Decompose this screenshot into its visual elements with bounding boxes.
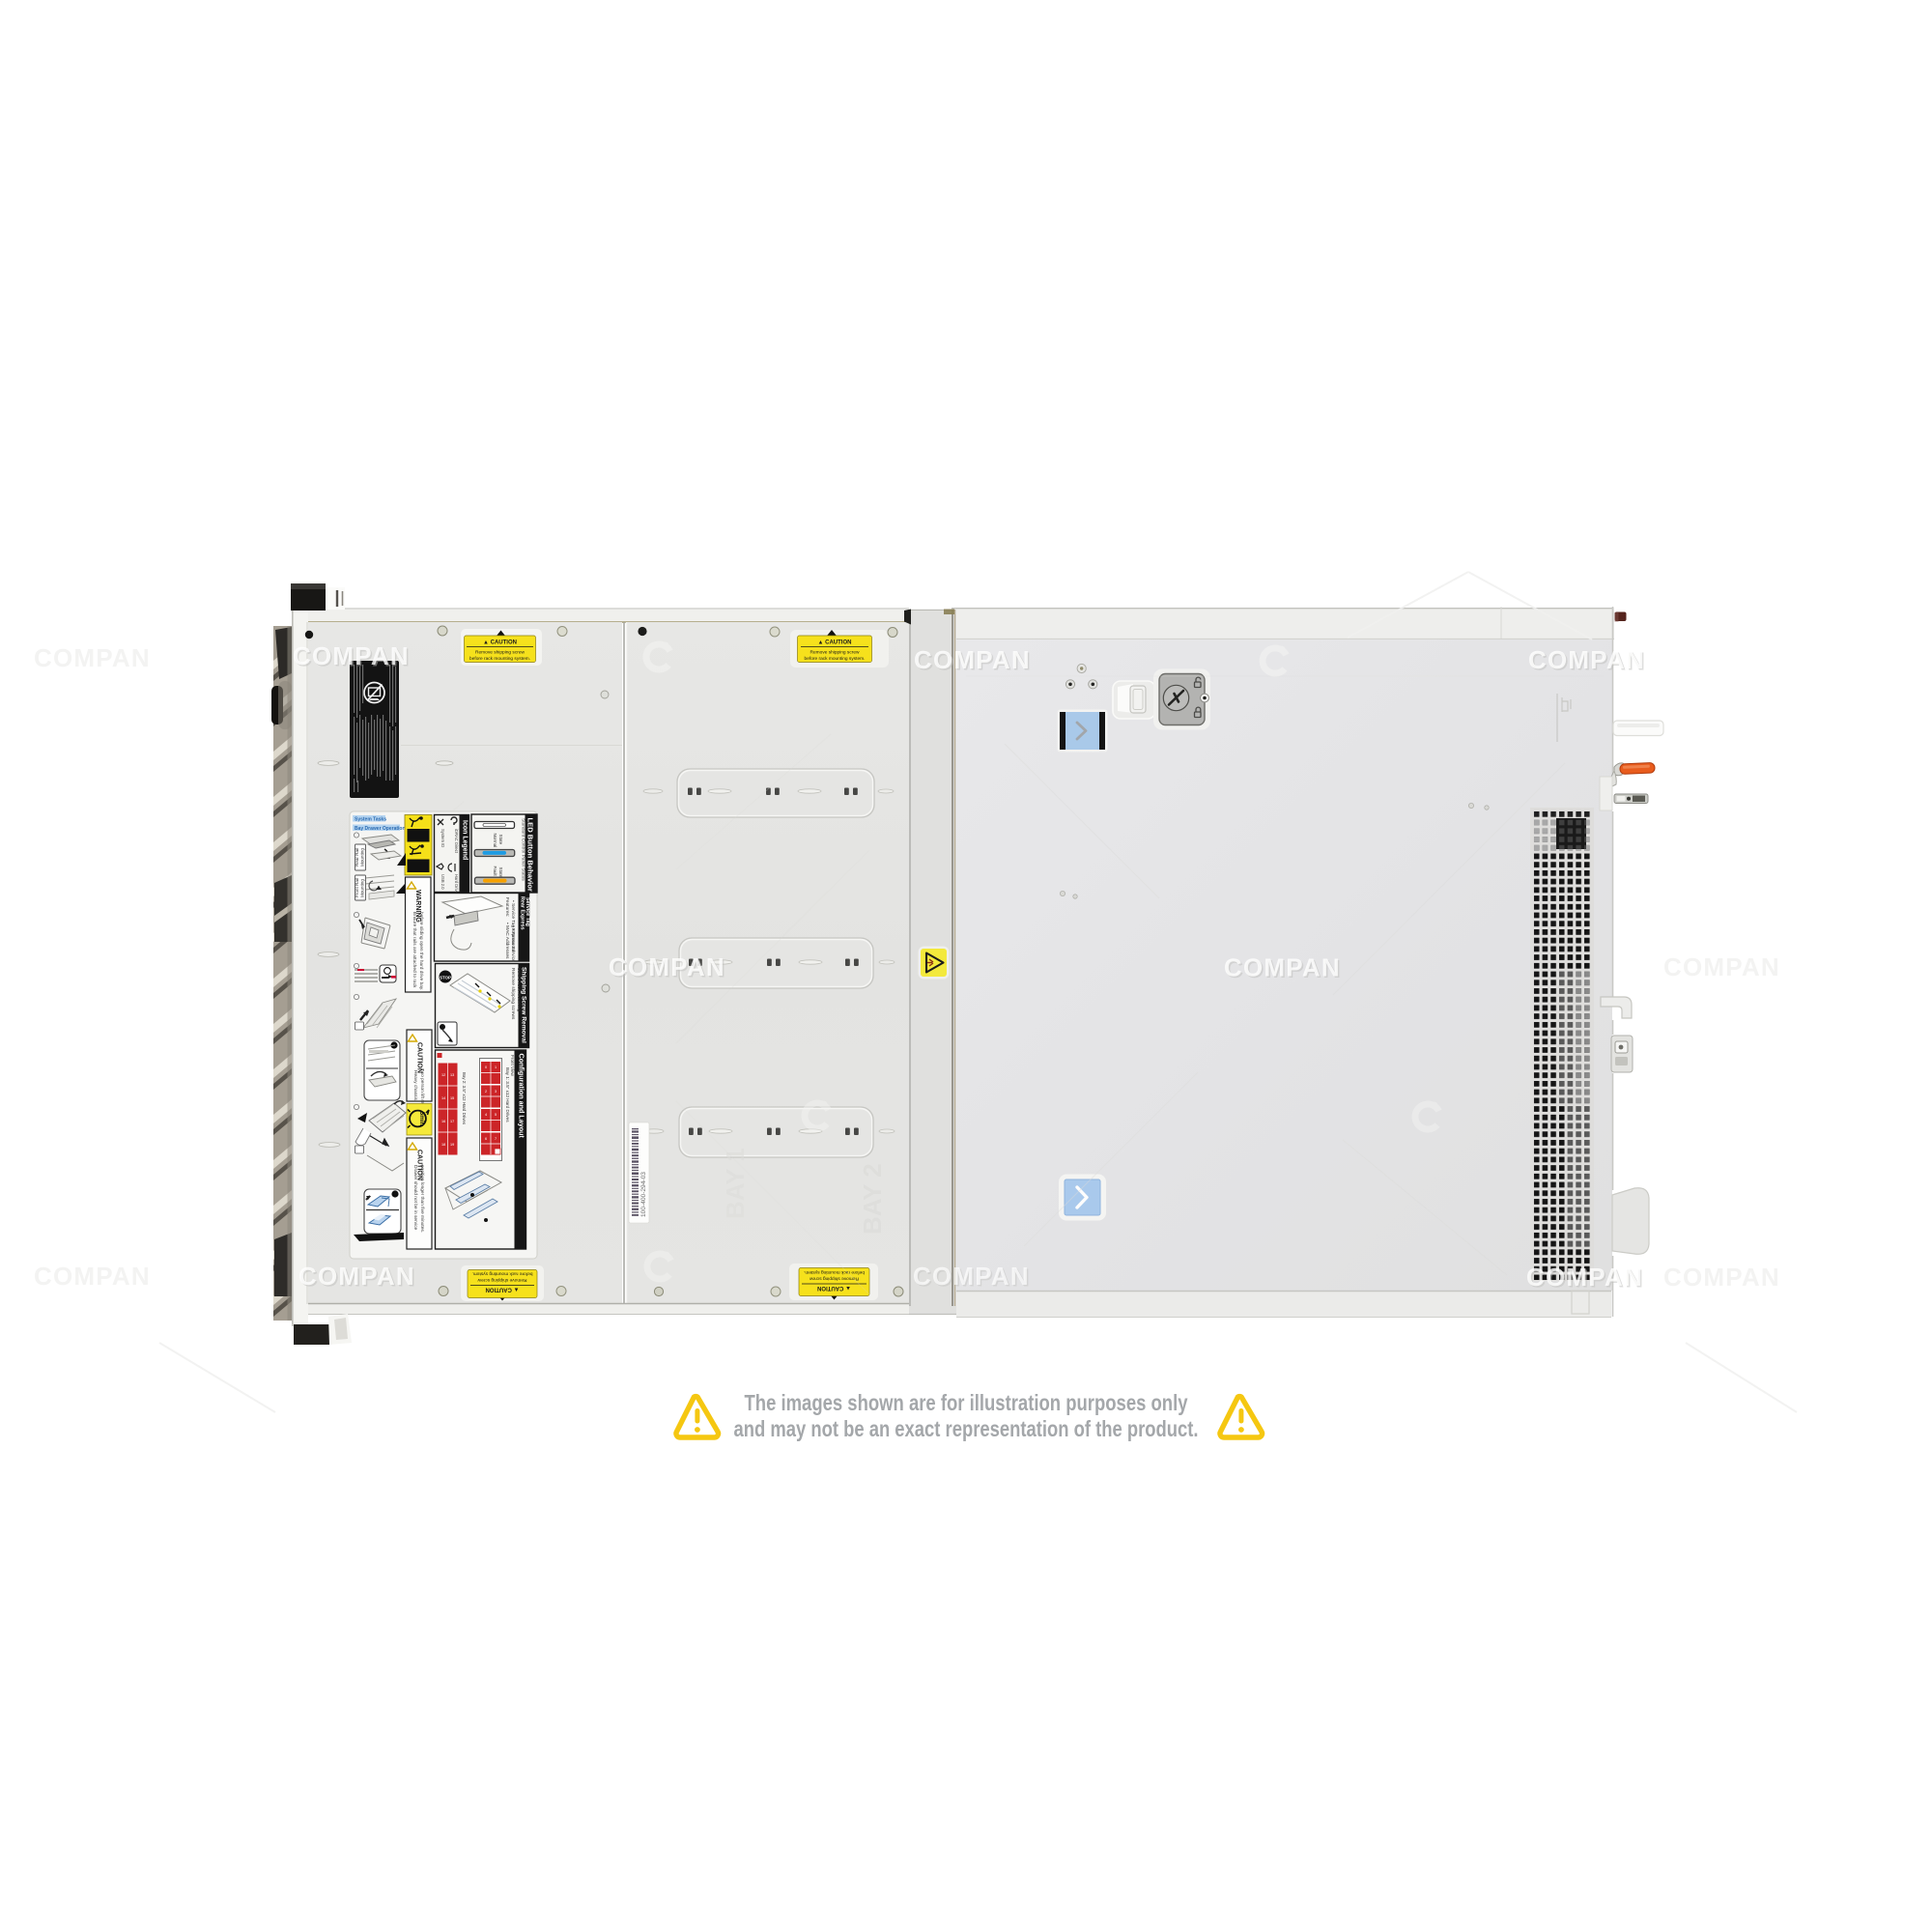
svg-text:COMPAN: COMPAN <box>293 641 410 670</box>
svg-text:before rack mounting system.: before rack mounting system. <box>804 1269 865 1275</box>
svg-text:Remove shipping screw: Remove shipping screw <box>475 650 525 656</box>
svg-text:before sliding open the hard d: before sliding open the hard drive bay. <box>418 912 424 990</box>
svg-text:2: 2 <box>485 1090 487 1094</box>
svg-text:COMPAN: COMPAN <box>298 1262 415 1291</box>
svg-text:COMPAN: COMPAN <box>1663 952 1780 981</box>
svg-text:and may not be an exact repres: and may not be an exact representation o… <box>734 1416 1199 1441</box>
svg-text:▲ CAUTION: ▲ CAUTION <box>483 640 517 646</box>
svg-text:COMPAN: COMPAN <box>609 952 725 981</box>
svg-text:7: 7 <box>495 1137 497 1141</box>
svg-text:Configuration and Layout: Configuration and Layout <box>518 1054 526 1139</box>
svg-text:12: 12 <box>441 1073 445 1077</box>
svg-text:Fault: Fault <box>493 867 497 877</box>
svg-text:16: 16 <box>441 1120 445 1123</box>
svg-text:COMPAN: COMPAN <box>34 643 151 672</box>
svg-text:Two person lift req.: Two person lift req. <box>419 1068 425 1108</box>
svg-text:COMPAN: COMPAN <box>1526 1263 1643 1292</box>
svg-text:17: 17 <box>450 1120 454 1123</box>
svg-text:Features:: Features: <box>504 897 510 917</box>
svg-text:before rack mounting system.: before rack mounting system. <box>805 656 866 662</box>
svg-text:State: State <box>498 867 503 878</box>
svg-text:COMPAN: COMPAN <box>1663 1263 1780 1292</box>
svg-text:Standard Control Panel Status: Standard Control Panel Status <box>521 818 526 881</box>
svg-text:before rack mounting system.: before rack mounting system. <box>469 656 530 662</box>
svg-text:COMPAN: COMPAN <box>1224 953 1341 982</box>
svg-text:Icon Legend: Icon Legend <box>462 820 469 860</box>
svg-text:18: 18 <box>441 1143 445 1147</box>
svg-text:Front Rail: Front Rail <box>355 878 359 897</box>
svg-text:5min: 5min <box>418 1112 425 1126</box>
svg-text:13: 13 <box>450 1073 454 1077</box>
svg-text:Mounting: Mounting <box>360 879 365 897</box>
svg-text:14: 14 <box>441 1096 445 1100</box>
svg-text:Rear Express: Rear Express <box>520 896 526 929</box>
svg-text:position longer than five minu: position longer than five minutes. <box>419 1165 425 1233</box>
svg-text:• MAC Addresses: • MAC Addresses <box>504 923 510 959</box>
svg-text:LED Button Behavior: LED Button Behavior <box>526 818 535 892</box>
svg-text:Remove shipping screw: Remove shipping screw <box>477 1277 526 1283</box>
svg-text:Drawer should not be in servic: Drawer should not be in service <box>412 1165 418 1231</box>
svg-text:USB 2.0: USB 2.0 <box>440 874 445 890</box>
svg-text:▲ CAUTION: ▲ CAUTION <box>817 1285 851 1291</box>
svg-text:1: 1 <box>495 1065 497 1069</box>
svg-text:BAY 2: BAY 2 <box>858 1163 887 1235</box>
svg-text:100-400-294-03: 100-400-294-03 <box>640 1172 647 1217</box>
svg-text:The images shown are for illus: The images shown are for illustration pu… <box>745 1390 1188 1415</box>
svg-text:19: 19 <box>450 1143 454 1147</box>
svg-text:before rack mounting system.: before rack mounting system. <box>472 1271 533 1277</box>
svg-text:Service Tag: Service Tag <box>525 897 530 926</box>
svg-text:COMPAN: COMPAN <box>1528 645 1645 674</box>
svg-text:COMPAN: COMPAN <box>913 1262 1030 1291</box>
svg-text:▲ CAUTION: ▲ CAUTION <box>486 1287 520 1293</box>
svg-text:15: 15 <box>450 1096 454 1100</box>
svg-text:Bay 1: 3.5" x12 Hard Drives: Bay 1: 3.5" x12 Hard Drives <box>505 1067 510 1122</box>
svg-text:iDRAC Direct: iDRAC Direct <box>454 829 459 854</box>
svg-text:Rear Rail: Rear Rail <box>355 848 359 867</box>
svg-text:5: 5 <box>495 1113 497 1117</box>
svg-text:Remove shipping screw: Remove shipping screw <box>810 650 860 656</box>
svg-text:Ensure that rails are attached: Ensure that rails are attached to rack <box>412 912 417 988</box>
svg-text:3: 3 <box>495 1090 497 1094</box>
svg-text:Bay Drawer Operation: Bay Drawer Operation <box>355 826 406 832</box>
svg-text:▲ CAUTION: ▲ CAUTION <box>818 640 852 646</box>
svg-text:4: 4 <box>485 1113 487 1117</box>
svg-text:COMPAN: COMPAN <box>34 1262 151 1291</box>
svg-text:before rack mounting: before rack mounting <box>516 968 522 1011</box>
svg-text:6: 6 <box>485 1137 487 1141</box>
svg-text:Heavy chassis.: Heavy chassis. <box>412 1070 418 1101</box>
svg-text:Remove shipping screws: Remove shipping screws <box>510 968 516 1020</box>
svg-text:State: State <box>498 835 503 845</box>
svg-text:Normal: Normal <box>493 834 497 848</box>
svg-text:0: 0 <box>485 1065 487 1069</box>
svg-text:BAY 1: BAY 1 <box>721 1148 750 1219</box>
svg-text:System Tasks: System Tasks <box>355 816 386 822</box>
svg-text:Bay 2: 3.5" x12 Hard Drives: Bay 2: 3.5" x12 Hard Drives <box>462 1072 467 1125</box>
svg-text:COMPAN: COMPAN <box>914 645 1031 674</box>
svg-text:Mounting: Mounting <box>360 848 365 867</box>
svg-text:Hard Drive: Hard Drive <box>454 874 459 895</box>
svg-text:System ID: System ID <box>440 829 445 847</box>
svg-text:STOP: STOP <box>440 976 451 980</box>
